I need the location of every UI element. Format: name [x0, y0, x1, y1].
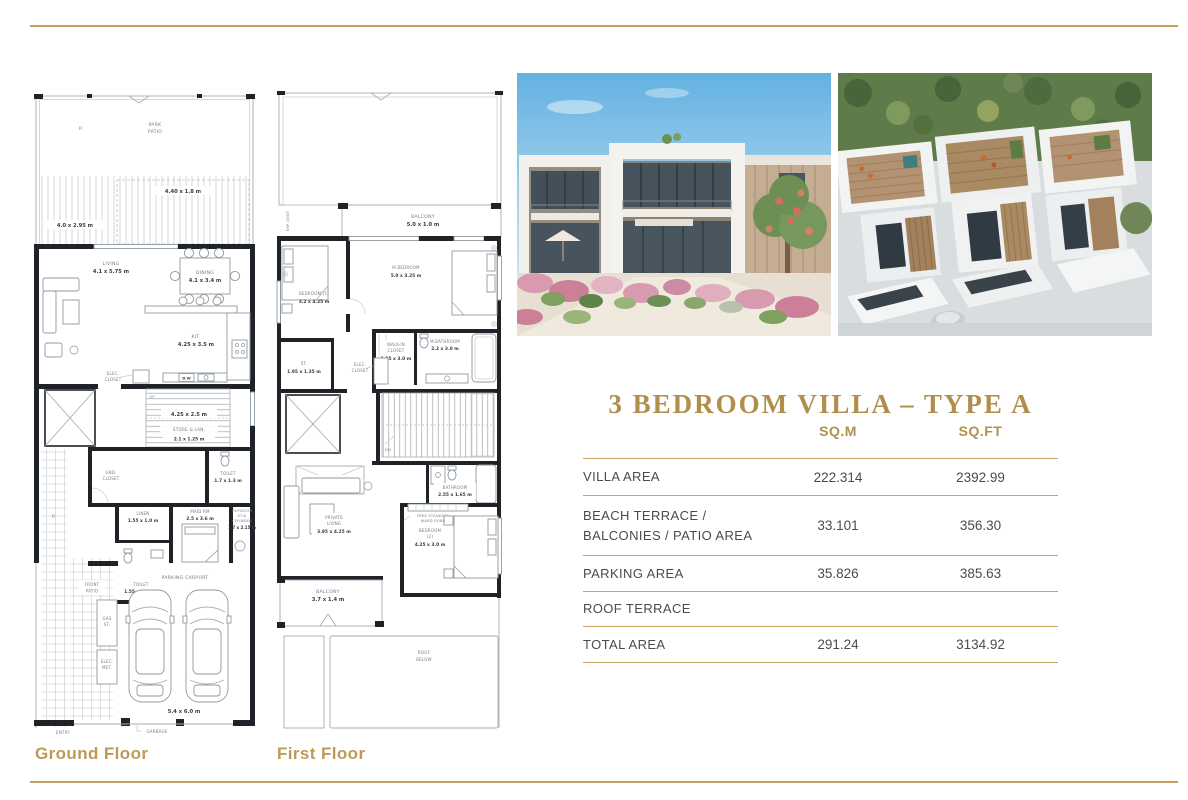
label-garbage: GARBAGE	[146, 729, 167, 734]
ground-floor-caption: Ground Floor	[35, 744, 148, 764]
room-label-toilet1: TOILET	[219, 471, 236, 476]
svg-text:2.55 x 1.65 m: 2.55 x 1.65 m	[438, 492, 472, 498]
bedroom-1: BEDROOM (1) 3.2 x 4.25 m	[282, 241, 365, 332]
room-label-bathroom: BATHROOM	[443, 485, 468, 490]
table-row-total-area: TOTAL AREA 291.24 3134.92	[583, 626, 1058, 663]
row-sqm: 33.101	[773, 518, 903, 533]
svg-text:PATIO: PATIO	[148, 129, 162, 135]
row-label: ROOF TERRACE	[583, 599, 773, 619]
svg-text:2.2 x 3.0 m: 2.2 x 3.0 m	[431, 346, 459, 352]
row-sqft: 356.30	[903, 518, 1058, 533]
room-label-balcony2: BALCONY	[316, 589, 340, 595]
room-label-st: ST.	[301, 361, 307, 366]
room-label-toilet2: TOILET	[132, 582, 149, 587]
label-dishwasher: D.W	[182, 377, 190, 381]
car-icon	[126, 590, 174, 702]
areas-table: SQ.M SQ.FT VILLA AREA 222.314 2392.99 BE…	[583, 417, 1058, 663]
label-exp-joint: EXP. JOINT	[286, 210, 290, 231]
bathroom: BATHROOM 2.55 x 1.65 m	[404, 463, 498, 507]
room-label-park: PARK	[149, 122, 163, 128]
room-label-mbedroom: M.BEDROOM	[392, 265, 420, 270]
elec-closet-first: ELEC. CLOSET	[352, 358, 388, 384]
svg-text:BELOW: BELOW	[416, 657, 431, 662]
room-label-elec-closet-f: ELEC.	[354, 362, 366, 367]
svg-text:1.95 x 1.35 m: 1.95 x 1.35 m	[287, 369, 321, 375]
room-label-gnd-closet: GND.	[105, 470, 116, 475]
room-label-store: STORE & LAN.	[173, 427, 205, 432]
label-entry: ENTRY	[56, 730, 70, 735]
svg-text:1.7 x 2.15 m: 1.7 x 2.15 m	[228, 525, 256, 530]
col-header-sqft: SQ.FT	[903, 423, 1058, 439]
row-label: TOTAL AREA	[583, 635, 773, 655]
first-floor-caption: First Floor	[277, 744, 365, 764]
dim-deck: 4.40 x 1.8 m	[165, 189, 201, 195]
table-row-villa-area: VILLA AREA 222.314 2392.99	[583, 458, 1058, 495]
row-label: PARKING AREA	[583, 564, 773, 584]
room-label-mbathroom: M.BATHROOM	[430, 339, 460, 344]
svg-text:MET.: MET.	[102, 665, 112, 670]
svg-text:1.55 x 1.0 m: 1.55 x 1.0 m	[128, 518, 159, 524]
row-label: VILLA AREA	[583, 467, 773, 487]
room-label-elec-meter: ELEC.	[101, 659, 113, 664]
left-villa	[519, 155, 611, 283]
table-row-roof-terrace: ROOF TERRACE	[583, 591, 1058, 626]
kitchen: D.W KIT. 4.25 x 3.5 m	[145, 297, 250, 382]
ground-floor-plan: P. PARK PATIO 4.40 x 1.8 m 4.0 x 2.95 m	[33, 88, 256, 745]
dim-stairs: 4.25 x 2.5 m	[171, 412, 207, 418]
row-sqft: 385.63	[903, 566, 1058, 581]
row-sqm: 222.314	[773, 470, 903, 485]
brochure-page: P. PARK PATIO 4.40 x 1.8 m 4.0 x 2.95 m	[0, 0, 1188, 800]
room-label-front-patio: FRONT	[85, 582, 100, 587]
room-label-outdoor: OUTDOOR	[232, 509, 253, 513]
entry-area: ENTRY GARBAGE	[34, 718, 255, 735]
maid-room: MAID RM 2.5 x 3.6 m	[169, 503, 233, 563]
bottom-divider-line	[30, 781, 1178, 783]
svg-text:PATIO: PATIO	[86, 589, 98, 594]
room-label-linen: LINEN	[137, 511, 150, 516]
dim-deck2: 4.0 x 2.95 m	[57, 223, 93, 229]
front-patio: P. FRONT PATIO	[41, 449, 118, 727]
room-label-private-living: PRIVATE	[325, 515, 343, 520]
svg-text:CLOSET: CLOSET	[388, 348, 405, 353]
room-label-maid: MAID RM	[190, 509, 210, 514]
gnd-closet: GND. CLOSET	[88, 447, 255, 505]
svg-text:ST.: ST.	[104, 622, 110, 627]
room-label-bedroom2: BEDROOM	[419, 528, 442, 533]
upper-terrace: EXP. JOINT	[277, 91, 503, 231]
top-divider-line	[30, 25, 1178, 27]
svg-text:CLOSET: CLOSET	[103, 476, 120, 481]
room-label-living: LIVING	[103, 261, 120, 267]
row-label: BEACH TERRACE /BALCONIES / PATIO AREA	[583, 506, 773, 545]
parking-carport: PARKING CARPORT 5.4 x 6.0 m	[97, 575, 231, 715]
svg-text:5.0 x 1.0 m: 5.0 x 1.0 m	[407, 222, 440, 228]
roof-below: ROOF BELOW	[284, 636, 498, 728]
living-room: LIVING 4.1 x 5.75 m	[43, 261, 129, 357]
table-row-beach-terrace: BEACH TERRACE /BALCONIES / PATIO AREA 33…	[583, 495, 1058, 555]
photo-street-render	[517, 73, 831, 336]
balcony-bottom: BALCONY 3.7 x 1.4 m	[277, 576, 384, 628]
svg-text:ST.&: ST.&	[237, 514, 246, 518]
svg-text:5.0 x 3.25 m: 5.0 x 3.25 m	[391, 273, 422, 279]
svg-text:WARD ROBE: WARD ROBE	[421, 519, 446, 523]
master-bedroom: M.BEDROOM 5.0 x 3.25 m	[391, 246, 497, 327]
row-sqm: 291.24	[773, 637, 903, 652]
room-label-gas: GAS	[103, 616, 112, 621]
svg-text:4.1 x 3.4 m: 4.1 x 3.4 m	[189, 278, 222, 284]
room-label-dining: DINING	[196, 270, 214, 276]
dining-room: DINING 4.1 x 3.4 m	[170, 248, 239, 303]
row-sqft: 2392.99	[903, 470, 1058, 485]
room-label-bedroom1: BEDROOM (1)	[299, 291, 329, 296]
label-parking-carport: PARKING CARPORT	[162, 575, 209, 581]
label-up: UP	[149, 394, 155, 399]
balcony-top: BALCONY 5.0 x 1.0 m	[338, 203, 501, 237]
svg-text:CLOSET: CLOSET	[105, 377, 122, 382]
svg-text:1.7 x 1.3 m: 1.7 x 1.3 m	[214, 478, 242, 484]
room-label-p-top: P.	[79, 126, 83, 132]
car-icon	[183, 590, 231, 702]
center-villa	[609, 133, 745, 287]
svg-text:4.25 x 3.5 m: 4.25 x 3.5 m	[178, 342, 214, 348]
toilet-1: TOILET 1.7 x 1.3 m	[205, 447, 242, 505]
photo-aerial-render	[838, 73, 1152, 336]
table-row-parking-area: PARKING AREA 35.826 385.63	[583, 555, 1058, 591]
svg-text:2.1 x 1.25 m: 2.1 x 1.25 m	[174, 437, 205, 443]
svg-text:3.7 x 1.4 m: 3.7 x 1.4 m	[312, 597, 345, 603]
room-label-roof-below: ROOF	[418, 650, 431, 655]
col-header-sqm: SQ.M	[773, 423, 903, 439]
svg-text:3.2 x 4.25 m: 3.2 x 4.25 m	[299, 299, 330, 305]
svg-text:LIVING: LIVING	[327, 521, 342, 526]
master-bathroom: M.BATHROOM 2.2 x 3.0 m	[420, 334, 496, 383]
park-patio: P. PARK PATIO 4.40 x 1.8 m 4.0 x 2.95 m	[34, 94, 255, 248]
storage-room: ST. 1.95 x 1.35 m	[277, 338, 334, 391]
row-sqm: 35.826	[773, 566, 903, 581]
first-floor-plan: EXP. JOINT BALCONY 5.0 x 1.0 m	[276, 88, 504, 741]
elevator-shaft	[45, 390, 95, 446]
svg-text:4.1 x 5.75 m: 4.1 x 5.75 m	[93, 269, 129, 275]
svg-text:(2): (2)	[427, 534, 434, 539]
svg-text:2.5 x 3.6 m: 2.5 x 3.6 m	[186, 516, 214, 522]
table-header-row: SQ.M SQ.FT	[583, 417, 1058, 458]
dim-carport: 5.4 x 6.0 m	[168, 709, 201, 715]
svg-text:CLOSET: CLOSET	[352, 368, 369, 373]
row-sqft: 3134.92	[903, 637, 1058, 652]
svg-text:CYLINDER: CYLINDER	[232, 519, 252, 523]
elevator-shaft-first	[286, 395, 340, 453]
room-label-kitchen: KIT.	[191, 334, 200, 340]
room-label-balcony1: BALCONY	[411, 214, 435, 220]
private-living: PRIVATE LIVING 3.95 x 4.25 m	[284, 478, 372, 538]
label-dn: DN	[385, 447, 391, 452]
room-label-p-left: P.	[52, 514, 56, 520]
page-title: 3 BEDROOM VILLA – TYPE A	[583, 389, 1058, 420]
room-label-elec-closet: ELEC.	[107, 371, 119, 376]
svg-text:4.25 x 3.0 m: 4.25 x 3.0 m	[415, 542, 446, 548]
room-label-walkin: WALK-IN	[387, 342, 405, 347]
elec-closet-ground: ELEC. CLOSET	[105, 370, 149, 383]
svg-text:3.95 x 4.25 m: 3.95 x 4.25 m	[317, 529, 351, 535]
